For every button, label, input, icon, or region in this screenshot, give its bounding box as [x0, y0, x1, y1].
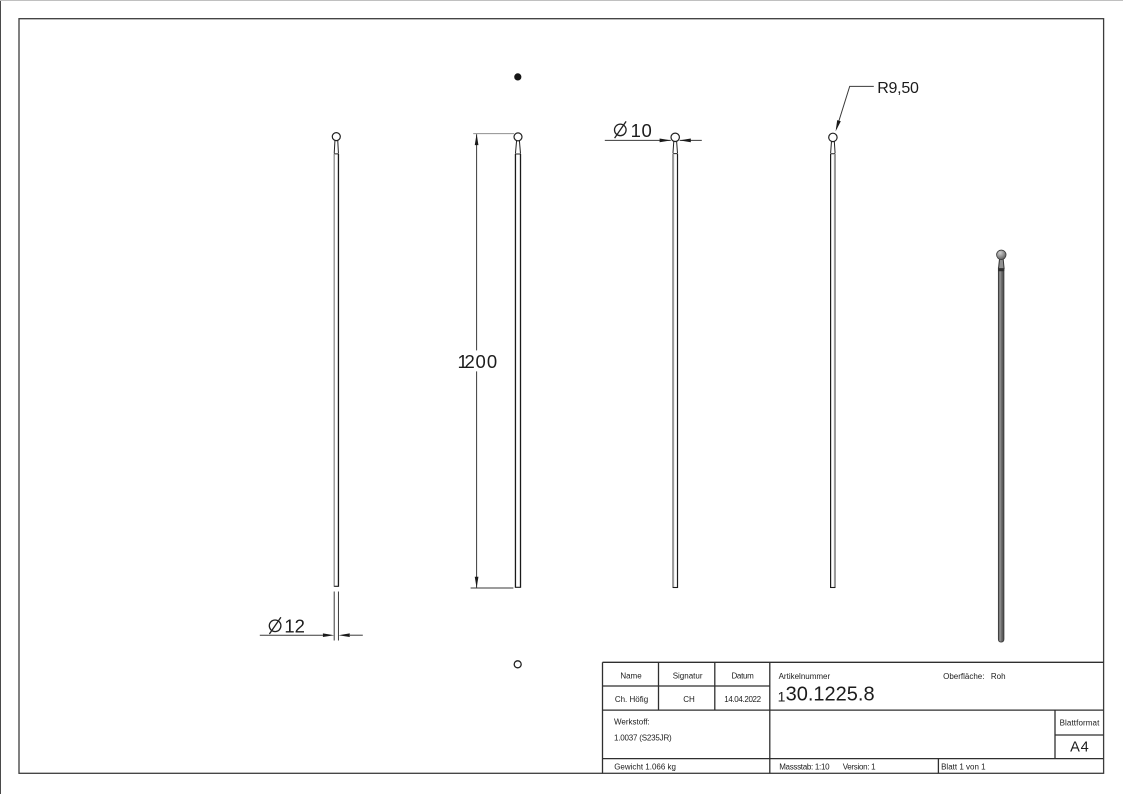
svg-text:Oberfläche:: Oberfläche:	[943, 672, 984, 681]
svg-text:A4: A4	[1070, 739, 1089, 755]
svg-text:Name: Name	[620, 672, 642, 681]
svg-text:Signatur: Signatur	[673, 672, 703, 681]
svg-text:12: 12	[284, 616, 304, 637]
svg-text:10: 10	[631, 120, 652, 141]
svg-text:Werkstoff:: Werkstoff:	[614, 718, 650, 727]
svg-text:Blatt 1 von 1: Blatt 1 von 1	[941, 762, 986, 771]
svg-text:1.0037 (S235JR): 1.0037 (S235JR)	[614, 734, 672, 743]
svg-text:Roh: Roh	[991, 672, 1006, 681]
svg-text:Version: 1: Version: 1	[843, 762, 876, 771]
svg-text:14.04.2022: 14.04.2022	[724, 695, 761, 704]
svg-text:Datum: Datum	[731, 672, 754, 681]
svg-text:Ch. Höfig: Ch. Höfig	[615, 695, 648, 704]
svg-text:1: 1	[778, 689, 786, 705]
svg-text:Gewicht 1.066 kg: Gewicht 1.066 kg	[614, 762, 676, 771]
svg-text:30.1225.8: 30.1225.8	[786, 683, 875, 705]
svg-text:R9,50: R9,50	[877, 80, 919, 97]
svg-text:CH: CH	[683, 695, 695, 704]
svg-text:Massstab: 1:10: Massstab: 1:10	[779, 762, 830, 771]
svg-text:Artikelnummer: Artikelnummer	[779, 672, 831, 681]
svg-text:Blattformat: Blattformat	[1060, 718, 1100, 727]
svg-text:1200: 1200	[458, 351, 498, 372]
